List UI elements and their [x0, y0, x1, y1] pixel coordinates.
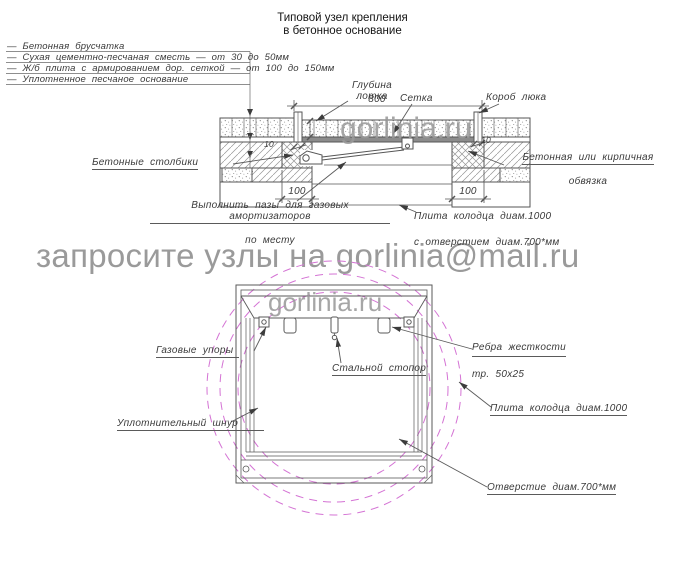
- label-ribs: Ребра жесткости тр. 50х25: [472, 342, 566, 382]
- label-opening-text: Отверстие диам.700*мм: [487, 482, 616, 495]
- label-steel-stopper-text: Стальной стопор: [332, 363, 426, 376]
- dim-text-100-left: 100: [274, 186, 320, 197]
- dim-text-800: 800: [352, 94, 402, 105]
- corner-pin-right: [419, 466, 425, 472]
- label-ribs-line1: Ребра жесткости: [472, 342, 566, 357]
- label-grooves-line1: Выполнить пазы для газовых амортизаторов: [150, 200, 390, 224]
- legend-item-paving: — Бетонная брусчатка: [7, 41, 124, 52]
- label-slab-line2: с отверстием диам.700*мм: [414, 237, 560, 248]
- gas-strut-left-plan: [259, 317, 269, 327]
- leader-opening: [399, 439, 487, 487]
- dim-text-10-left: 10: [264, 139, 274, 150]
- watermark-site-section: gorlinia.ru: [340, 112, 472, 146]
- label-grooves: Выполнить пазы для газовых амортизаторов…: [150, 200, 390, 246]
- rib-right: [378, 318, 390, 333]
- label-slab-line1: Плита колодца диам.1000: [414, 211, 551, 222]
- label-gas-struts-text: Газовые упоры: [156, 345, 239, 358]
- leader-gas-struts: [254, 327, 266, 351]
- rib-left: [284, 318, 296, 333]
- base-hatch-right: [452, 168, 500, 182]
- label-steel-stopper: Стальной стопор: [332, 363, 426, 376]
- dim-text-100-right: 100: [445, 186, 491, 197]
- paving-layer-left: [220, 118, 294, 137]
- label-slab-plan: Плита колодца диам.1000: [490, 403, 627, 416]
- plan-leaders: [231, 327, 491, 487]
- label-binding-line2: обвязка: [569, 176, 608, 187]
- label-ribs-line2: тр. 50х25: [472, 369, 524, 380]
- label-grooves-line2: по месту: [245, 235, 295, 246]
- label-seal-cord-text: Уплотнительный шнур: [117, 418, 264, 431]
- corner-pin-left: [243, 466, 249, 472]
- drawing-sheet: запросите узлы на gorlinia@mail.ru: [0, 0, 700, 568]
- steel-stopper-plan: [331, 317, 338, 340]
- page-title: Типовой узел крепления в бетонное основа…: [245, 12, 440, 38]
- leader-slab-plan: [459, 382, 491, 407]
- label-seal-cord: Уплотнительный шнур: [117, 418, 264, 431]
- label-slab-section: Плита колодца диам.1000 с отверстием диа…: [414, 210, 560, 249]
- legend-item-sand-base: — Уплотненное песчаное основание: [7, 74, 188, 85]
- watermark-site-plan: gorlinia.ru: [268, 287, 382, 318]
- leader-stopper: [337, 338, 341, 363]
- label-gas-struts: Газовые упоры: [156, 345, 239, 358]
- label-hatch-box: Короб люка: [486, 92, 546, 103]
- gas-strut-right-plan: [404, 317, 414, 327]
- legend-item-rc-slab: — Ж/б плита с армированием дор. сеткой —…: [7, 63, 335, 74]
- label-binding: Бетонная или кирпичная обвязка: [502, 152, 674, 187]
- sand-base-left: [222, 168, 252, 182]
- dim-text-10-right: 10: [481, 135, 491, 146]
- label-columns: Бетонные столбики: [92, 157, 198, 170]
- legend-item-cement-sand-mix: — Сухая цементно-песчаная сместь — от 30…: [7, 52, 289, 63]
- label-columns-text: Бетонные столбики: [92, 157, 198, 170]
- label-slab-plan-text: Плита колодца диам.1000: [490, 403, 627, 416]
- label-opening: Отверстие диам.700*мм: [487, 482, 616, 495]
- label-mesh: Сетка: [400, 93, 433, 104]
- label-binding-line1: Бетонная или кирпичная: [522, 152, 653, 165]
